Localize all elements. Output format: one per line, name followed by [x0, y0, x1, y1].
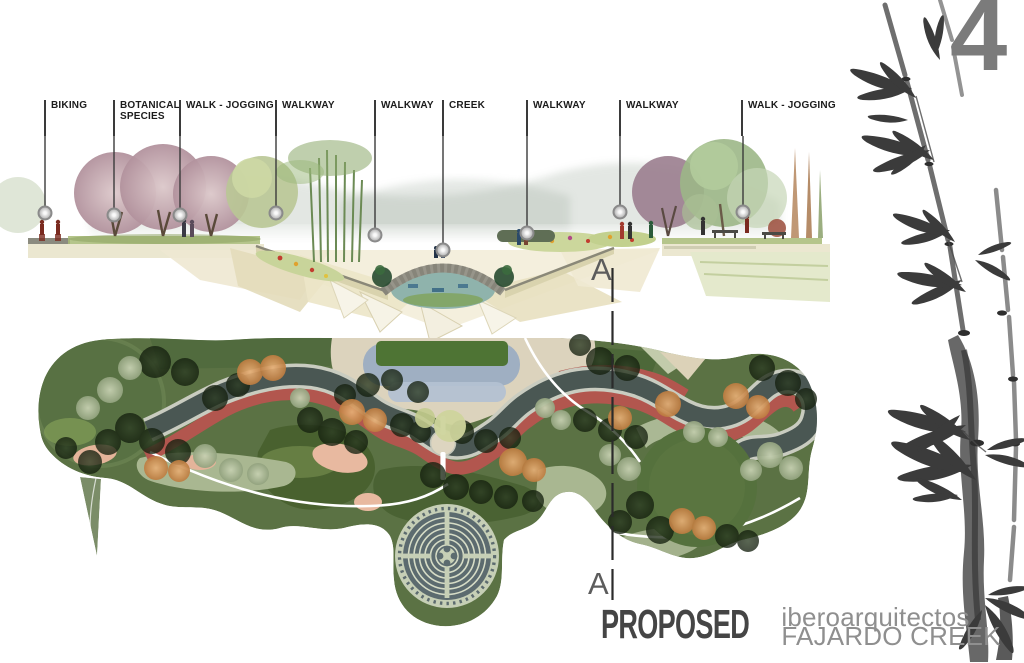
section-cut-letter-top: A — [591, 252, 612, 288]
section-label-biking: BIKING — [44, 100, 109, 136]
section-label-walkway-4: WALKWAY — [619, 100, 738, 136]
section-label-walk-jogging: WALK - JOGGING — [179, 100, 274, 136]
pale-tree-left — [0, 177, 46, 233]
section-label-botanical: BOTANICAL SPECIES — [113, 100, 178, 136]
section-label-walkway-2: WALKWAY — [374, 100, 441, 136]
section-label-walk-jogging-2: WALK - JOGGING — [741, 100, 836, 136]
title-project-name: FAJARDO CREEK — [781, 627, 1000, 646]
bike-path-strip — [28, 238, 70, 244]
section-label-walkway-1: WALKWAY — [275, 100, 372, 136]
title-status: PROPOSED — [601, 605, 749, 643]
title-block: PROPOSED iberoarquitectos FAJARDO CREEK — [601, 605, 1001, 646]
page-number: 4 — [950, 0, 1005, 94]
section-illustration — [0, 136, 830, 342]
presentation-board: BIKING BOTANICAL SPECIES WALK - JOGGING … — [0, 0, 1024, 663]
section-label-creek: CREEK — [442, 100, 525, 136]
labyrinth — [395, 504, 499, 608]
section-label-walkway-3: WALKWAY — [526, 100, 618, 136]
right-trees — [632, 139, 823, 238]
section-cut-letter-bottom: A — [588, 566, 609, 602]
plan-illustration — [36, 334, 817, 626]
bamboo-ink-painting — [848, 0, 1024, 662]
